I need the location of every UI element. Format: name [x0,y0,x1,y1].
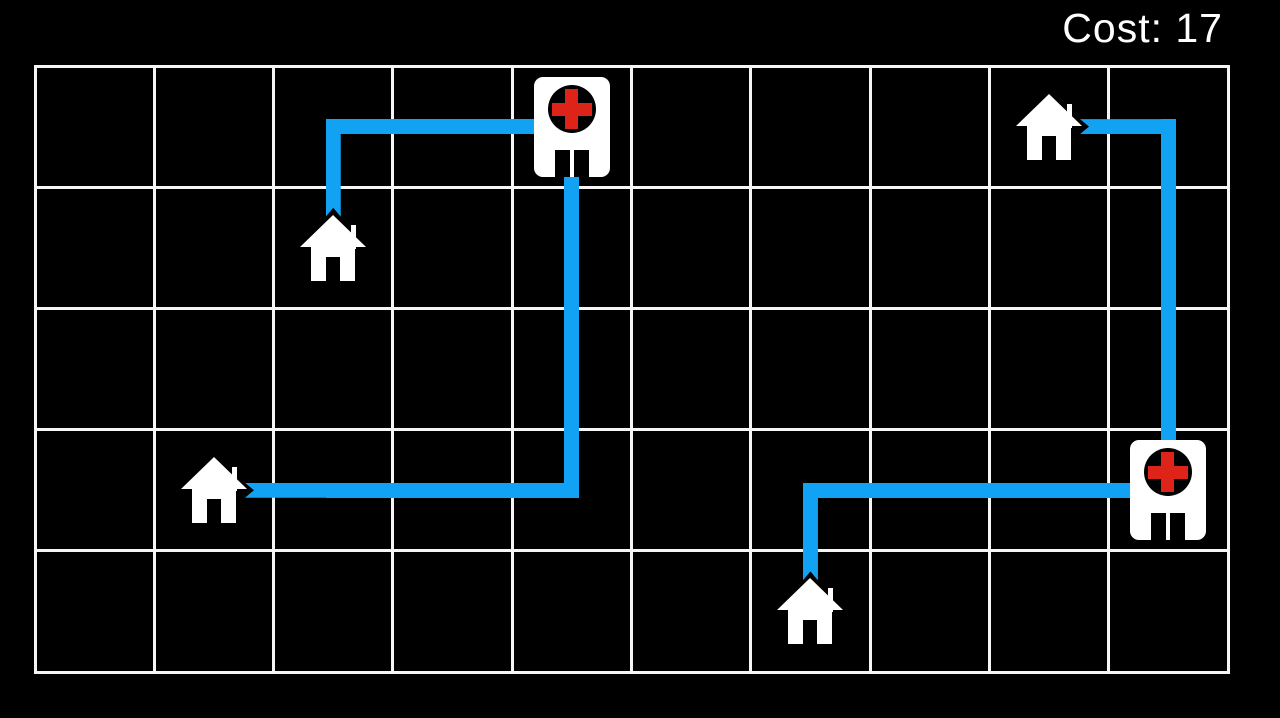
grid-line-horizontal [34,671,1230,674]
hospital-door [555,150,570,177]
house-3[interactable] [1016,94,1082,160]
grid-line-horizontal [34,307,1230,310]
route-segment [1161,240,1176,376]
route-segment [564,240,579,376]
grid-line-horizontal [34,549,1230,552]
house-2[interactable] [181,457,247,523]
hospital-2[interactable] [1130,440,1206,540]
grid-line-vertical [749,65,752,674]
house-door [207,499,221,523]
grid-line-vertical [511,65,514,674]
route-segment [1161,119,1176,255]
house-roof-icon [1016,94,1082,126]
route-segment [326,119,341,217]
grid-line-vertical [630,65,633,674]
grid-line-horizontal [34,428,1230,431]
route-segment [326,119,460,134]
grid-line-vertical [1227,65,1230,674]
grid-line-vertical [1107,65,1110,674]
house-roof-icon [181,457,247,489]
route-segment [803,483,937,498]
grid-line-horizontal [34,186,1230,189]
house-door [803,620,817,644]
house-4[interactable] [777,578,843,644]
route-segment [564,362,579,498]
hospital-door [574,150,589,177]
grid-line-vertical [153,65,156,674]
cost-label: Cost: 17 [1062,6,1223,51]
route-segment [1080,119,1176,134]
house-1[interactable] [300,215,366,281]
house-roof-icon [777,578,843,610]
route-segment [922,483,1056,498]
medical-cross-icon [1161,452,1174,492]
house-door [1042,136,1056,160]
game-board[interactable]: Cost: 17 [0,0,1280,718]
route-segment [326,483,460,498]
house-door [326,257,340,281]
grid-line-vertical [391,65,394,674]
medical-cross-icon [565,89,578,129]
grid-line-vertical [988,65,991,674]
route-segment [245,483,341,498]
grid-line-vertical [34,65,37,674]
house-roof-icon [300,215,366,247]
route-segment [803,483,818,581]
hospital-door [1151,513,1166,540]
grid-line-horizontal [34,65,1230,68]
grid-line-vertical [272,65,275,674]
hospital-1[interactable] [534,77,610,177]
grid-line-vertical [869,65,872,674]
hospital-door [1170,513,1185,540]
route-segment [445,483,579,498]
